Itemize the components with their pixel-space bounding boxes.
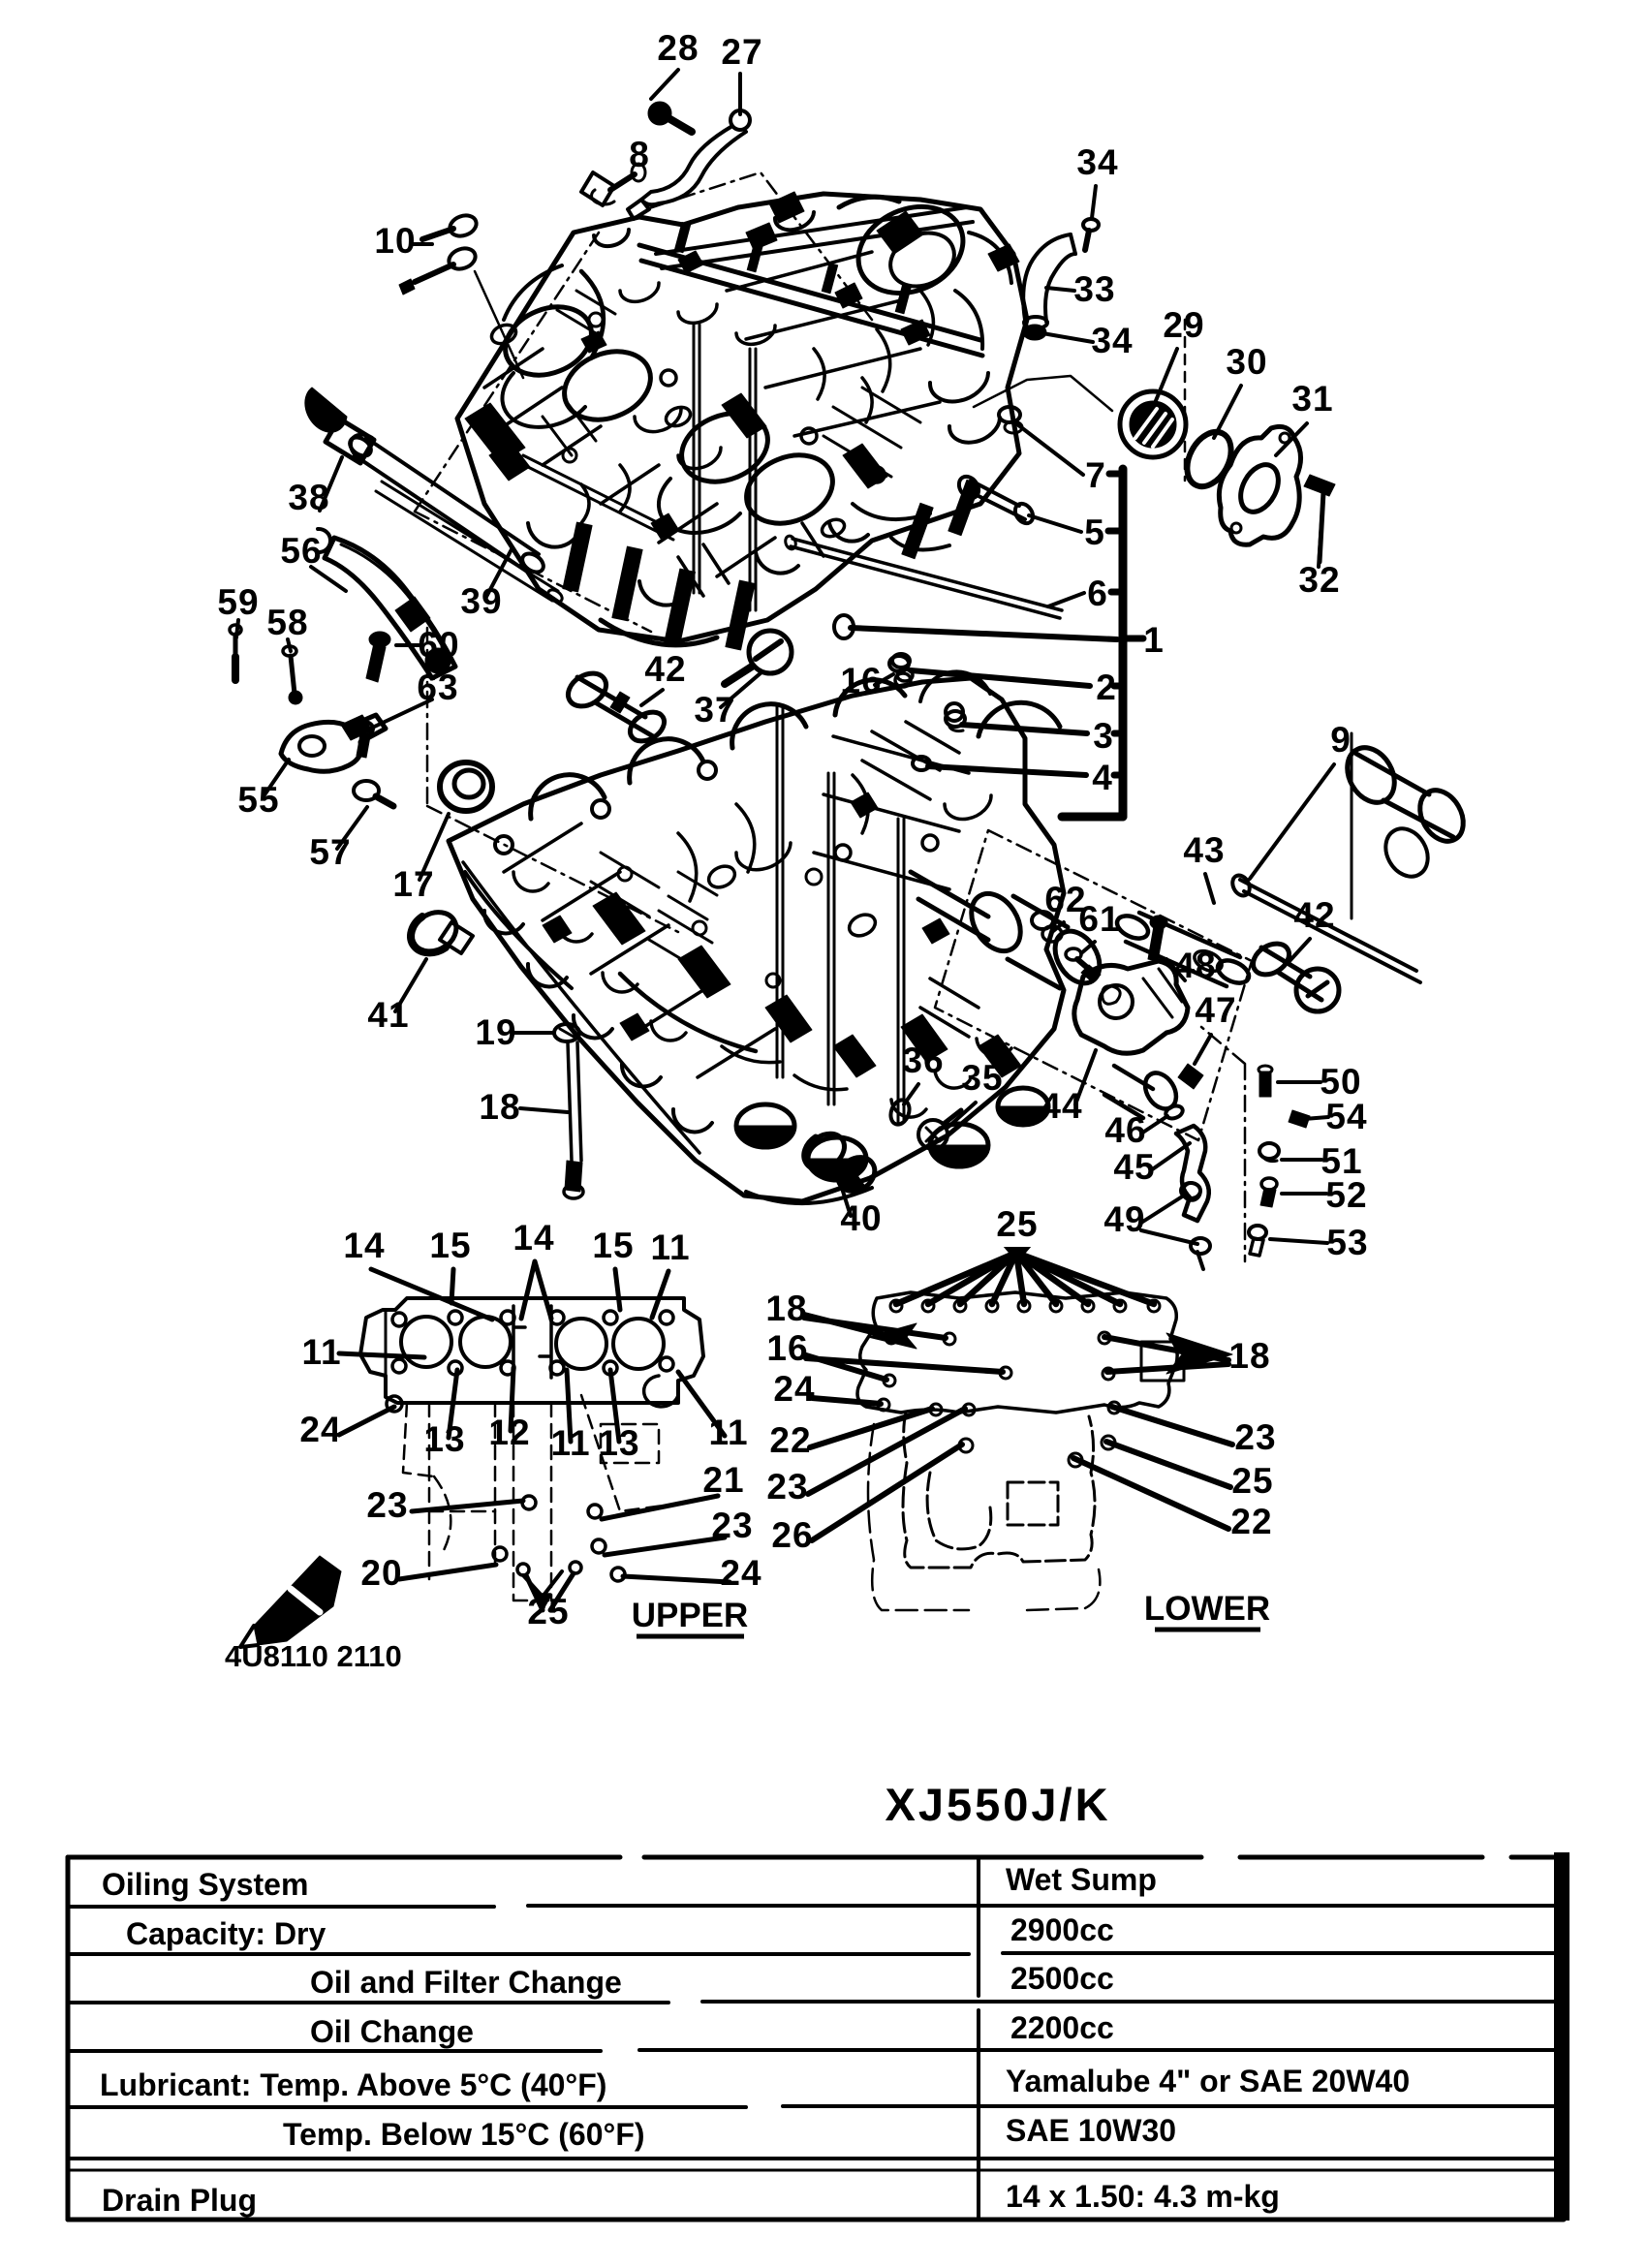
svg-text:33: 33 <box>1073 269 1115 309</box>
svg-text:18: 18 <box>479 1087 520 1127</box>
svg-text:26: 26 <box>771 1515 813 1555</box>
svg-text:24: 24 <box>773 1369 815 1409</box>
svg-text:2500cc: 2500cc <box>1010 1961 1114 1996</box>
svg-text:54: 54 <box>1325 1097 1367 1136</box>
svg-text:53: 53 <box>1326 1223 1368 1262</box>
svg-text:14: 14 <box>343 1226 385 1265</box>
svg-text:34: 34 <box>1076 142 1118 182</box>
svg-text:14: 14 <box>513 1218 554 1258</box>
svg-text:23: 23 <box>1234 1417 1276 1457</box>
svg-text:Oil and Filter Change: Oil and Filter Change <box>310 1965 622 2000</box>
svg-text:24: 24 <box>720 1553 761 1593</box>
svg-text:22: 22 <box>1230 1502 1272 1541</box>
svg-text:Oiling System: Oiling System <box>102 1867 308 1902</box>
svg-text:52: 52 <box>1325 1175 1367 1215</box>
svg-text:Drain Plug: Drain Plug <box>102 2183 257 2218</box>
svg-text:34: 34 <box>1091 321 1133 360</box>
svg-text:39: 39 <box>460 581 502 621</box>
svg-text:45: 45 <box>1113 1147 1155 1187</box>
svg-text:15: 15 <box>429 1226 471 1265</box>
svg-text:UPPER: UPPER <box>632 1597 749 1634</box>
svg-text:3: 3 <box>1093 716 1114 756</box>
svg-text:9: 9 <box>1330 720 1352 760</box>
svg-text:30: 30 <box>1226 342 1267 382</box>
svg-text:28: 28 <box>657 28 699 68</box>
svg-text:Temp. Below 15°C (60°F): Temp. Below 15°C (60°F) <box>283 2117 645 2152</box>
svg-text:25: 25 <box>996 1204 1038 1244</box>
svg-text:20: 20 <box>360 1553 402 1593</box>
svg-text:23: 23 <box>766 1467 808 1507</box>
svg-text:Capacity: Dry: Capacity: Dry <box>126 1916 326 1951</box>
svg-text:17: 17 <box>392 864 434 904</box>
svg-text:1: 1 <box>1143 620 1165 660</box>
svg-text:LOWER: LOWER <box>1144 1590 1270 1628</box>
svg-text:23: 23 <box>366 1485 408 1525</box>
svg-text:6: 6 <box>1087 574 1108 613</box>
svg-text:43: 43 <box>1183 830 1225 870</box>
svg-text:42: 42 <box>644 649 686 689</box>
svg-text:15: 15 <box>592 1226 634 1265</box>
svg-text:Lubricant: Temp. Above 5°C (40: Lubricant: Temp. Above 5°C (40°F) <box>100 2067 606 2102</box>
svg-text:7: 7 <box>1085 455 1106 495</box>
svg-text:47: 47 <box>1195 990 1236 1030</box>
svg-text:61: 61 <box>1078 899 1120 939</box>
svg-text:11: 11 <box>301 1332 341 1372</box>
svg-text:27: 27 <box>721 32 762 72</box>
svg-text:2900cc: 2900cc <box>1010 1912 1114 1947</box>
svg-text:4: 4 <box>1092 758 1113 797</box>
svg-text:50: 50 <box>1320 1062 1361 1102</box>
svg-text:18: 18 <box>1228 1336 1270 1376</box>
svg-text:21: 21 <box>702 1460 744 1500</box>
svg-text:Oil Change: Oil Change <box>310 2014 474 2049</box>
svg-text:25: 25 <box>1231 1461 1273 1501</box>
svg-text:58: 58 <box>266 603 308 642</box>
svg-text:31: 31 <box>1291 379 1333 419</box>
svg-text:49: 49 <box>1103 1199 1145 1239</box>
svg-text:14 x 1.50: 4.3 m-kg: 14 x 1.50: 4.3 m-kg <box>1006 2179 1280 2214</box>
svg-text:Wet Sump: Wet Sump <box>1006 1862 1157 1897</box>
svg-text:59: 59 <box>217 582 259 622</box>
svg-text:22: 22 <box>769 1420 811 1460</box>
svg-text:18: 18 <box>765 1289 807 1328</box>
svg-text:Yamalube 4" or SAE 20W40: Yamalube 4" or SAE 20W40 <box>1006 2064 1410 2098</box>
svg-text:16: 16 <box>766 1328 808 1368</box>
svg-text:24: 24 <box>299 1410 341 1449</box>
svg-text:56: 56 <box>280 531 322 571</box>
svg-text:10: 10 <box>374 221 416 261</box>
svg-text:11: 11 <box>650 1227 690 1267</box>
svg-text:SAE 10W30: SAE 10W30 <box>1006 2113 1176 2148</box>
svg-text:2200cc: 2200cc <box>1010 2010 1114 2045</box>
svg-text:XJ550J/K: XJ550J/K <box>885 1779 1110 1830</box>
svg-text:55: 55 <box>237 780 279 820</box>
svg-text:5: 5 <box>1084 513 1105 552</box>
svg-text:37: 37 <box>694 690 735 730</box>
